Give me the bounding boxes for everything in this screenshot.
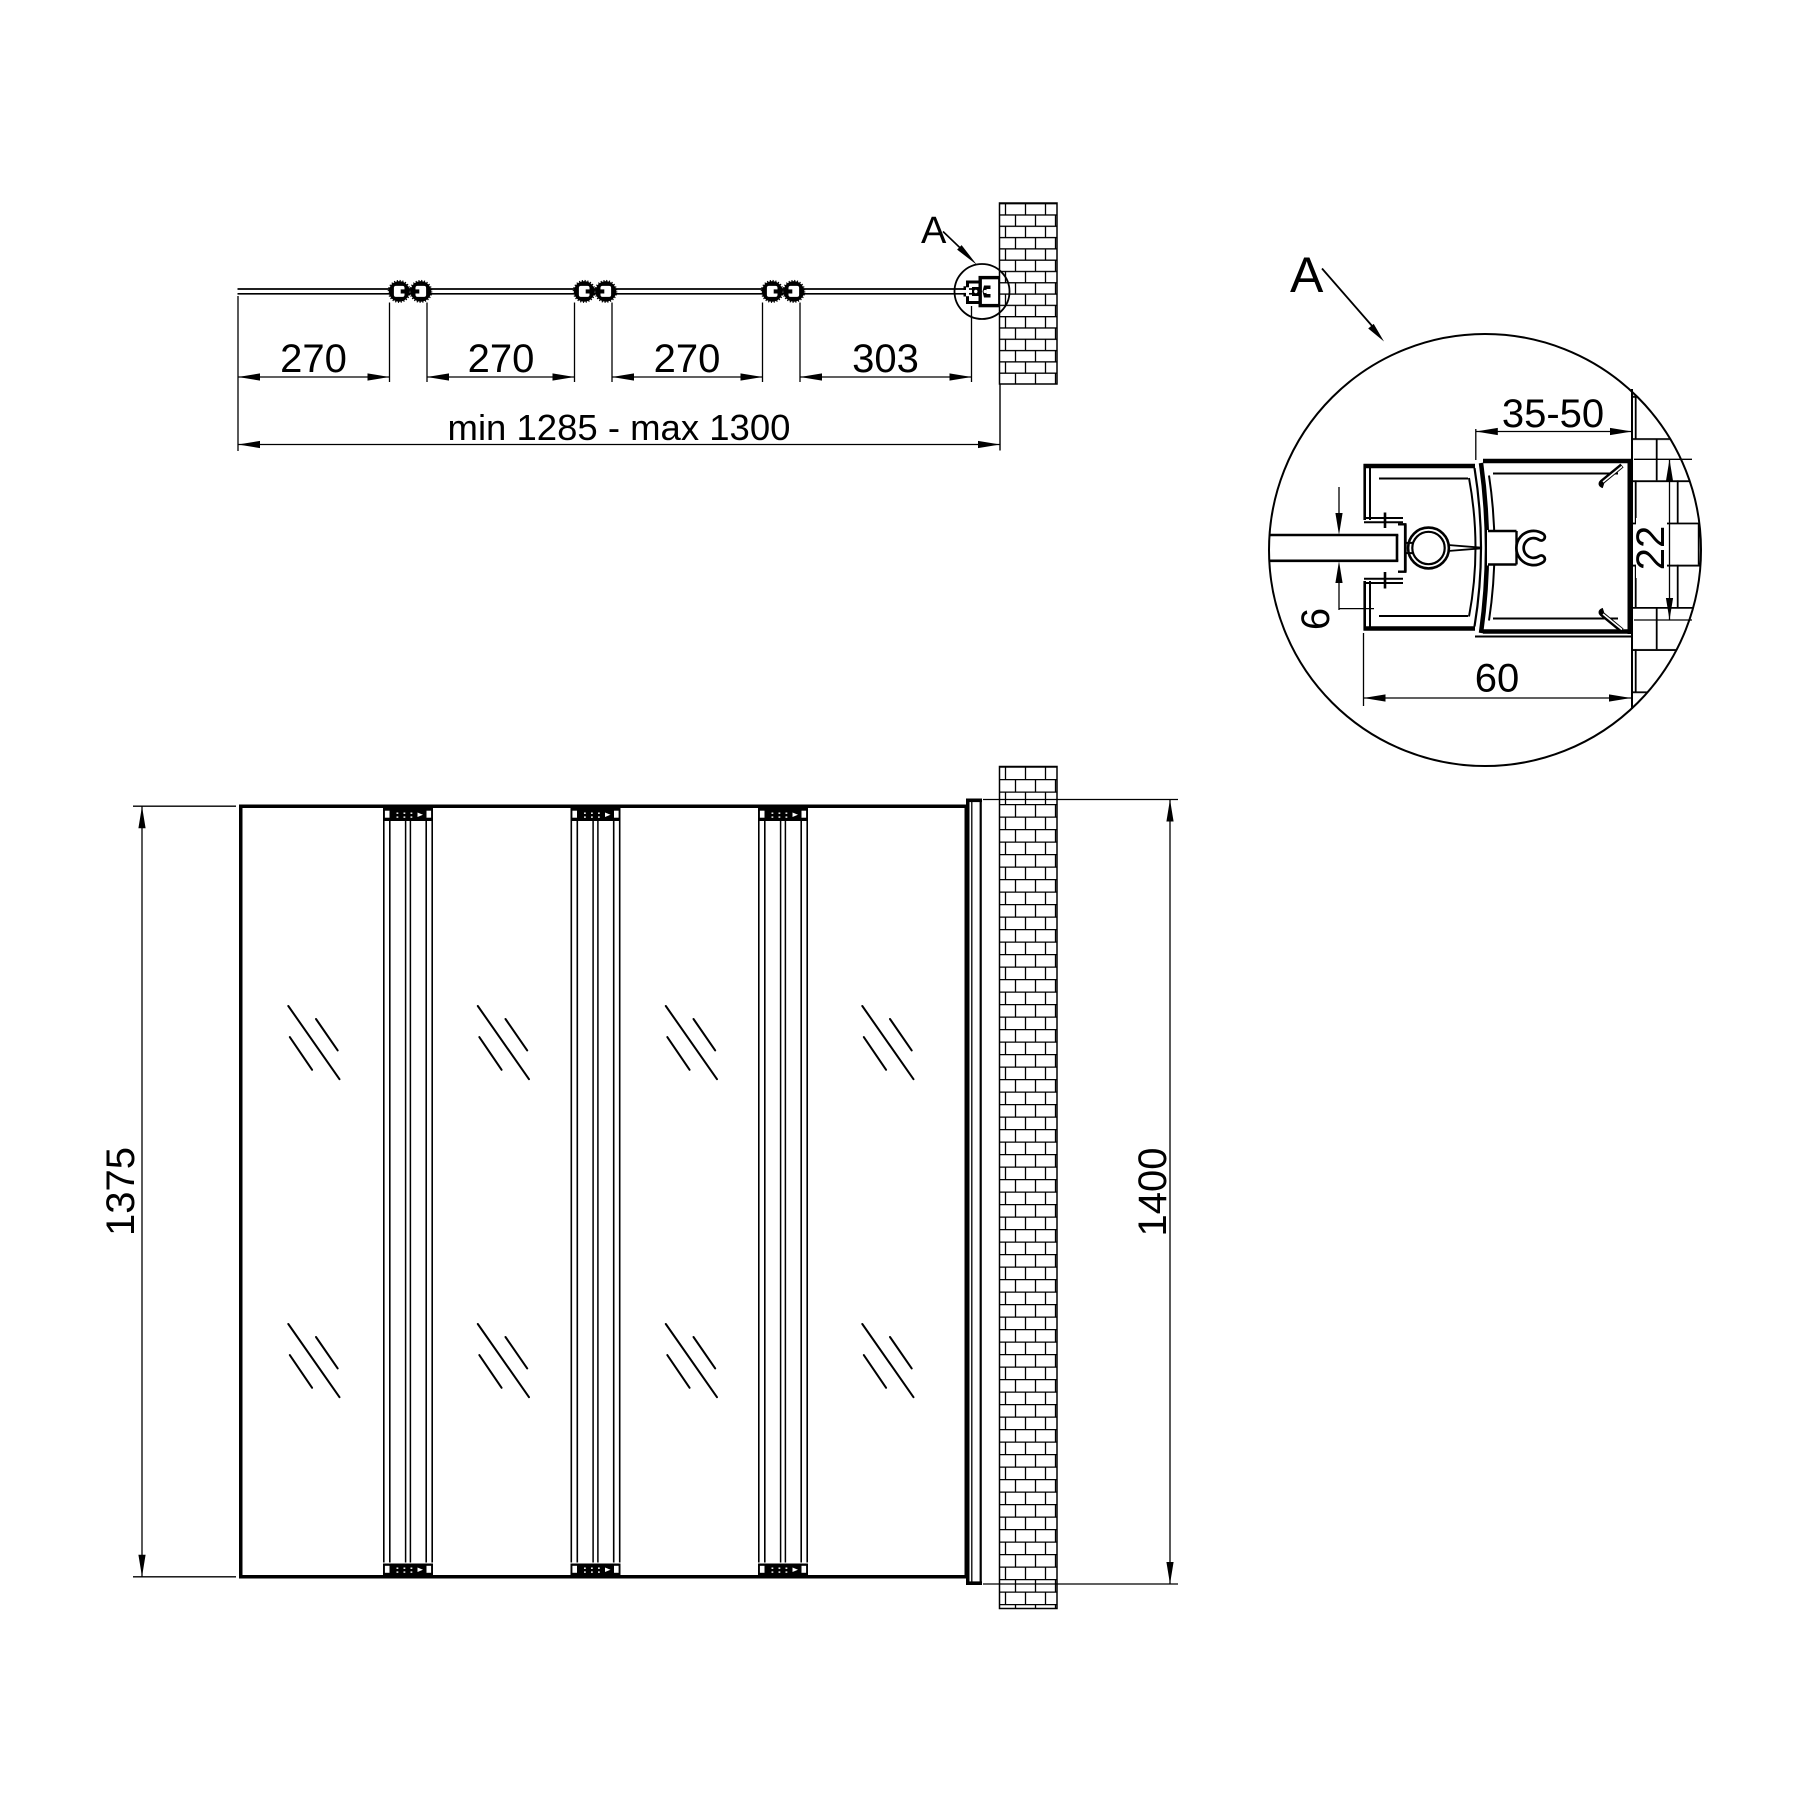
svg-text:303: 303 [852,337,919,381]
svg-text:1400: 1400 [1131,1148,1175,1237]
svg-text:270: 270 [654,337,721,381]
svg-text:A: A [1290,247,1324,303]
svg-text:6: 6 [1294,608,1338,630]
svg-text:35-50: 35-50 [1502,392,1604,436]
svg-text:270: 270 [280,337,347,381]
svg-text:60: 60 [1475,657,1520,701]
svg-text:1375: 1375 [99,1147,143,1236]
svg-text:min 1285 - max 1300: min 1285 - max 1300 [448,407,791,448]
svg-text:270: 270 [468,337,535,381]
svg-text:22: 22 [1629,526,1673,571]
svg-text:A: A [921,210,947,252]
